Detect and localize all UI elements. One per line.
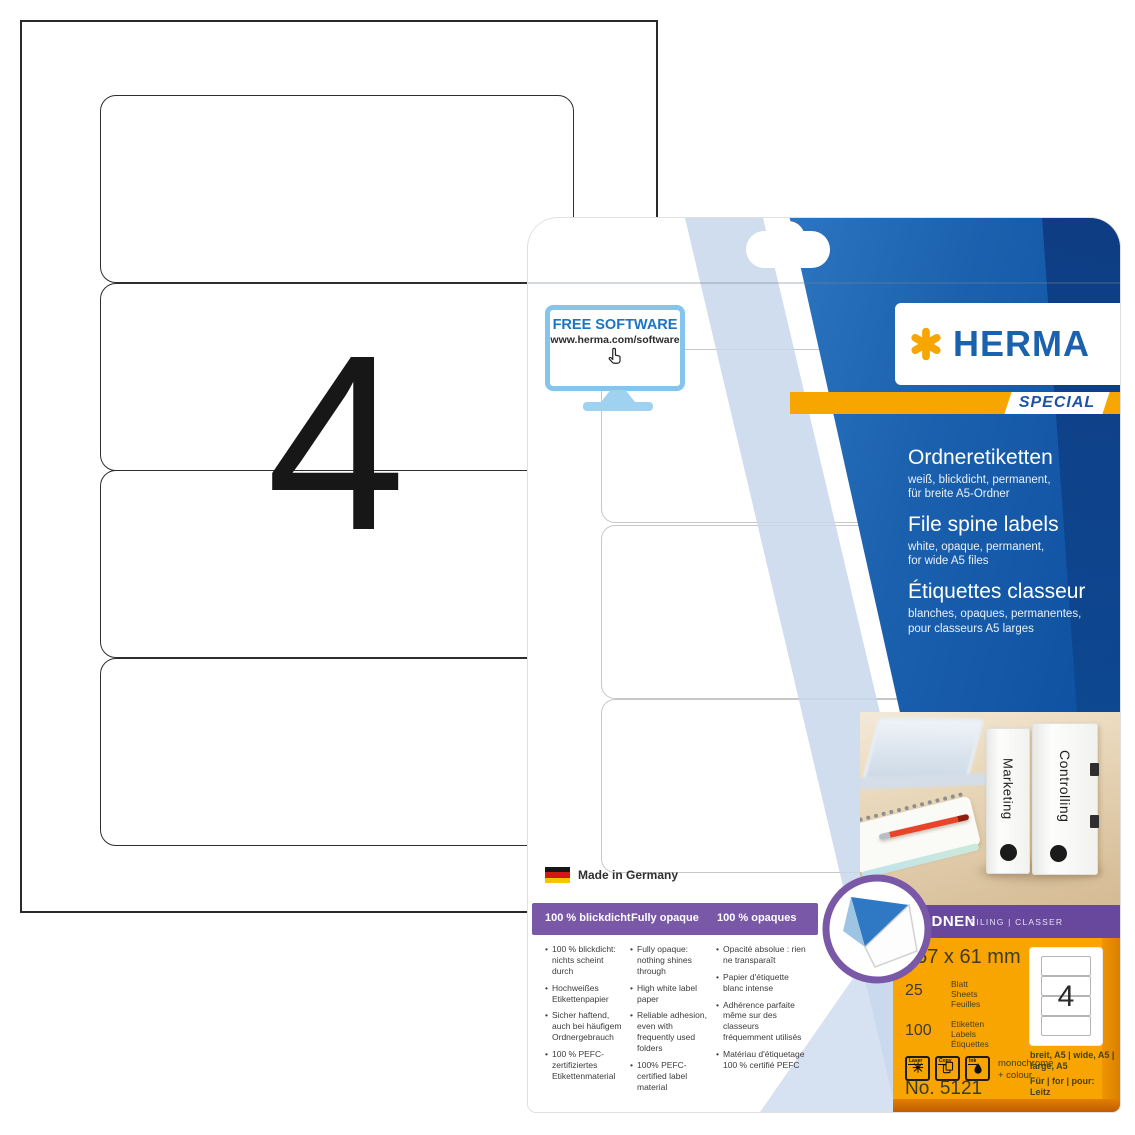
binder-clip [1090, 763, 1099, 776]
claim-en: Fully opaque [631, 912, 699, 924]
bullet-item: Opacité absolue : rien ne transparaît [716, 944, 810, 966]
word: Etiketten [951, 1019, 989, 1029]
free-software-monitor: FREE SOFTWARE www.herma.com/software [545, 305, 685, 391]
article-number: No. 5121 [905, 1078, 982, 1100]
bullet-item: Adhérence parfaite même sur des classeur… [716, 1000, 810, 1044]
for-line: Für | for | pour: [1030, 1076, 1095, 1087]
title-en-sub2: for wide A5 files [908, 554, 1116, 568]
label-count-words: Etiketten Labels Étiquettes [951, 1019, 989, 1049]
word: Étiquettes [951, 1039, 989, 1049]
bullet-item: Sicher haftend, auch bei häufigem Ordner… [545, 1010, 625, 1043]
word: Labels [951, 1029, 989, 1039]
brand-name: HERMA [953, 323, 1090, 365]
hand-cursor-icon [550, 347, 680, 372]
bullet-item: 100% PEFC-certified label material [630, 1060, 710, 1093]
label-outline [100, 658, 574, 846]
title-en-text: File spine labels [908, 513, 1116, 537]
labels-per-sheet-number: 4 [100, 318, 572, 568]
made-in-label: Made in Germany [578, 868, 678, 882]
per-sheet-count: 4 [1030, 948, 1102, 1045]
product-titles: Ordneretiketten weiß, blickdicht, perman… [908, 446, 1116, 648]
label-count: 100 [905, 1022, 932, 1040]
header-seam [528, 282, 1120, 284]
title-fr-sub1: blanches, opaques, permanentes, [908, 607, 1116, 621]
word: Feuilles [951, 999, 980, 1009]
binder-controlling: Controlling [1032, 723, 1098, 875]
title-en: File spine labels white, opaque, permane… [908, 513, 1116, 568]
binder-finger-hole [1000, 844, 1017, 861]
title-de: Ordneretiketten weiß, blickdicht, perman… [908, 446, 1116, 501]
title-fr: Étiquettes classeur blanches, opaques, p… [908, 580, 1116, 635]
claims-bar: 100 % blickdicht Fully opaque 100 % opaq… [532, 903, 818, 935]
laser-star-icon [911, 1061, 924, 1079]
bullets-fr: Opacité absolue : rien ne transparaît Pa… [716, 944, 810, 1077]
binder-marketing: Marketing [986, 728, 1030, 874]
format-note: breit, A5 | wide, A5 | large, A5 [1030, 1050, 1114, 1073]
edition-label: SPECIAL [1004, 394, 1110, 412]
title-en-sub1: white, opaque, permanent, [908, 540, 1116, 554]
bullet-item: High white label paper [630, 983, 710, 1005]
format-line: large, A5 [1030, 1061, 1114, 1072]
for-note: Für | for | pour: Leitz [1030, 1076, 1095, 1099]
title-fr-sub2: pour classeurs A5 larges [908, 622, 1116, 636]
peel-label-badge [821, 873, 933, 985]
free-software-url: www.herma.com/software [550, 334, 680, 346]
monitor-base [583, 402, 653, 411]
product-package: HERMA SPECIAL Ordneretiketten weiß, blic… [528, 218, 1120, 1112]
panel-bottom-edge [893, 1099, 1120, 1112]
bullet-item: Papier d'étiquette blanc intense [716, 972, 810, 994]
herma-asterisk-icon [909, 327, 943, 361]
ink-droplet-icon [972, 1061, 984, 1079]
bullet-item: 100 % blickdicht: nichts scheint durch [545, 944, 625, 977]
panel-side-edge [1102, 938, 1120, 1112]
format-line: breit, A5 | wide, A5 | [1030, 1050, 1114, 1061]
label-outline [100, 95, 574, 283]
binder-finger-hole [1050, 845, 1067, 862]
mini-sheet-card: 4 [1030, 948, 1102, 1045]
bullet-item: Fully opaque: nothing shines through [630, 944, 710, 977]
special-band: SPECIAL [790, 392, 1120, 414]
for-line: Leitz [1030, 1087, 1095, 1098]
title-fr-text: Étiquettes classeur [908, 580, 1116, 604]
word: Sheets [951, 989, 980, 999]
binder-clip [1090, 815, 1099, 828]
title-de-sub2: für breite A5-Ordner [908, 487, 1116, 501]
german-flag-icon [545, 867, 570, 883]
free-software-title: FREE SOFTWARE [550, 317, 680, 333]
bullet-item: Reliable adhesion, even with frequently … [630, 1010, 710, 1054]
bullets-en: Fully opaque: nothing shines through Hig… [630, 944, 710, 1099]
bullets-de: 100 % blickdicht: nichts scheint durch H… [545, 944, 625, 1088]
claim-de: 100 % blickdicht [545, 912, 631, 924]
binder-spine-label: Marketing [986, 738, 1030, 840]
sheet-count-words: Blatt Sheets Feuilles [951, 979, 980, 1009]
category-subtitle: FILING | CLASSER [970, 917, 1063, 927]
title-de-sub1: weiß, blickdicht, permanent, [908, 473, 1116, 487]
brand-logo-box: HERMA [895, 303, 1120, 385]
bullet-item: 100 % PEFC-zertifiziertes Etikettenmater… [545, 1049, 625, 1082]
title-de-text: Ordneretiketten [908, 446, 1116, 470]
claim-fr: 100 % opaques [717, 912, 796, 924]
copy-sheets-icon [941, 1061, 954, 1079]
bullet-item: Matériau d'étiquetage 100 % certifié PEF… [716, 1049, 810, 1071]
product-packshot: 4 HERMA SPECIAL [0, 0, 1135, 1135]
word: Blatt [951, 979, 980, 989]
hang-hole [746, 231, 830, 268]
binder-spine-label: Controlling [1032, 733, 1098, 839]
bullet-item: Hochweißes Etikettenpapier [545, 983, 625, 1005]
